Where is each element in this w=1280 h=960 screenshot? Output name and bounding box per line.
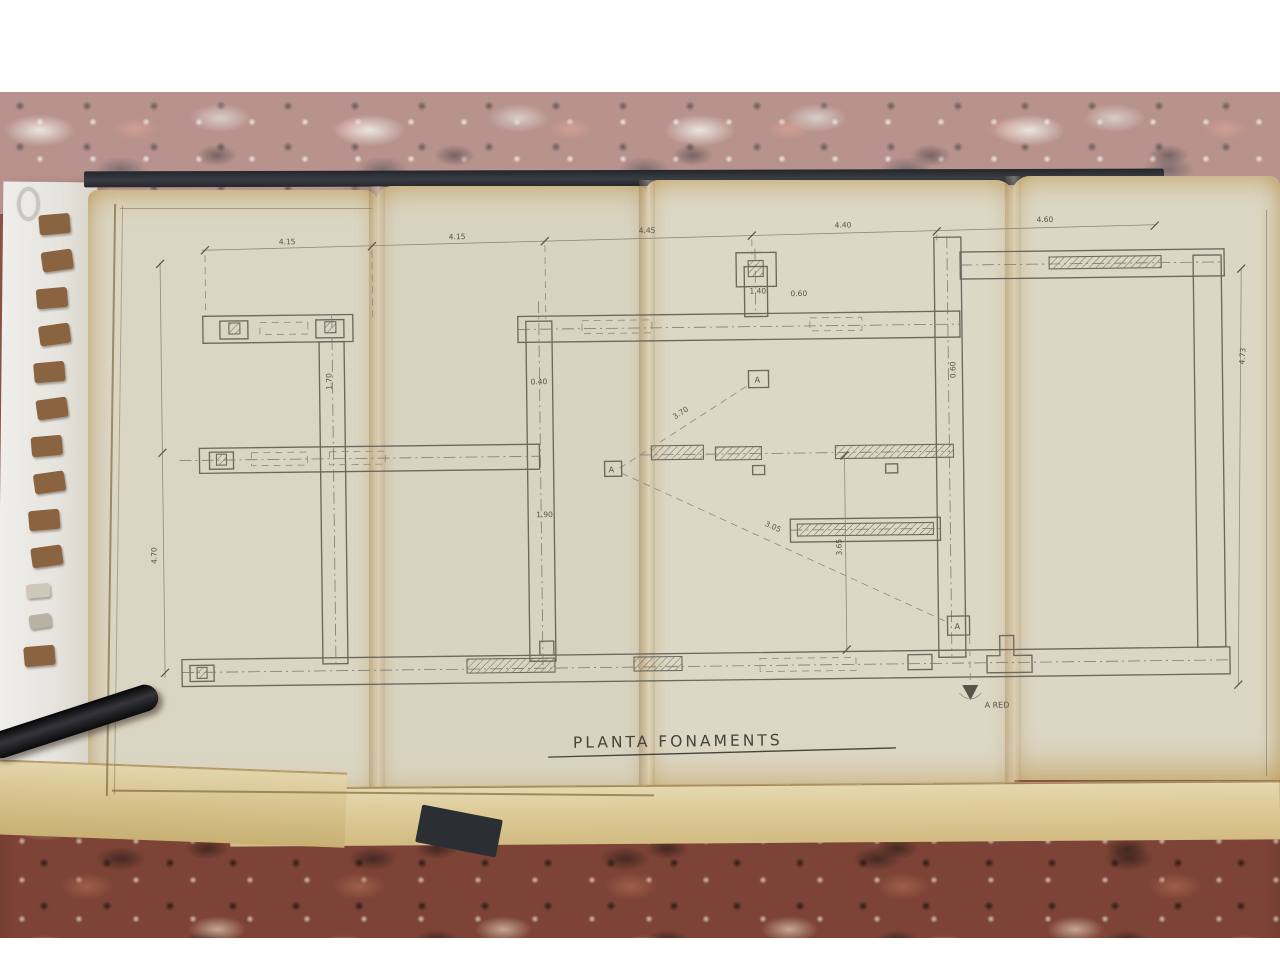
dimension-label: 3.65 <box>834 539 843 556</box>
section-marker-a: A <box>609 465 615 474</box>
a-red-label: A RED <box>984 701 1009 710</box>
foundation-walls <box>177 234 1230 687</box>
foundation-beams <box>249 256 1166 678</box>
dimension-label: 4.70 <box>150 547 159 564</box>
dimension-label: 0.60 <box>790 289 807 298</box>
photo-of-blueprint: 4.15 4.15 4.45 4.40 4.60 4.70 4.73 <box>0 92 1280 938</box>
dimension-label: 0.60 <box>948 361 957 378</box>
dimension-label: 3.05 <box>763 519 782 534</box>
dimension-label: 4.15 <box>449 232 466 241</box>
centerlines <box>177 233 1232 673</box>
small-dimensions: 0.40 1.90 1.40 0.60 3.65 3.70 3.05 1.70 … <box>323 284 959 562</box>
top-dimension-line: 4.15 4.15 4.45 4.40 4.60 <box>201 214 1160 324</box>
plan-title: PLANTA FONAMENTS <box>573 731 783 752</box>
dimension-label: 4.15 <box>279 237 296 246</box>
dimension-label: 0.40 <box>530 377 547 386</box>
drawing-title: PLANTA FONAMENTS <box>548 730 896 757</box>
section-marker-a: A <box>754 376 760 385</box>
right-dimension-line: 4.73 <box>1229 265 1252 689</box>
foundation-plan-drawing: 4.15 4.15 4.45 4.40 4.60 4.70 4.73 <box>0 92 1280 938</box>
left-dimension-line: 4.70 <box>146 260 169 678</box>
dimension-label: 1.40 <box>749 286 766 295</box>
dimension-label: 1.90 <box>536 510 553 519</box>
dimension-label: 4.73 <box>1237 347 1247 365</box>
dimension-label: 4.45 <box>639 226 656 235</box>
dimension-label: 3.70 <box>671 404 690 421</box>
dimension-label: 4.60 <box>1037 215 1054 224</box>
dimension-label: 1.70 <box>324 373 333 390</box>
section-marker-a: A <box>955 622 961 631</box>
dimension-label: 4.40 <box>835 220 852 229</box>
